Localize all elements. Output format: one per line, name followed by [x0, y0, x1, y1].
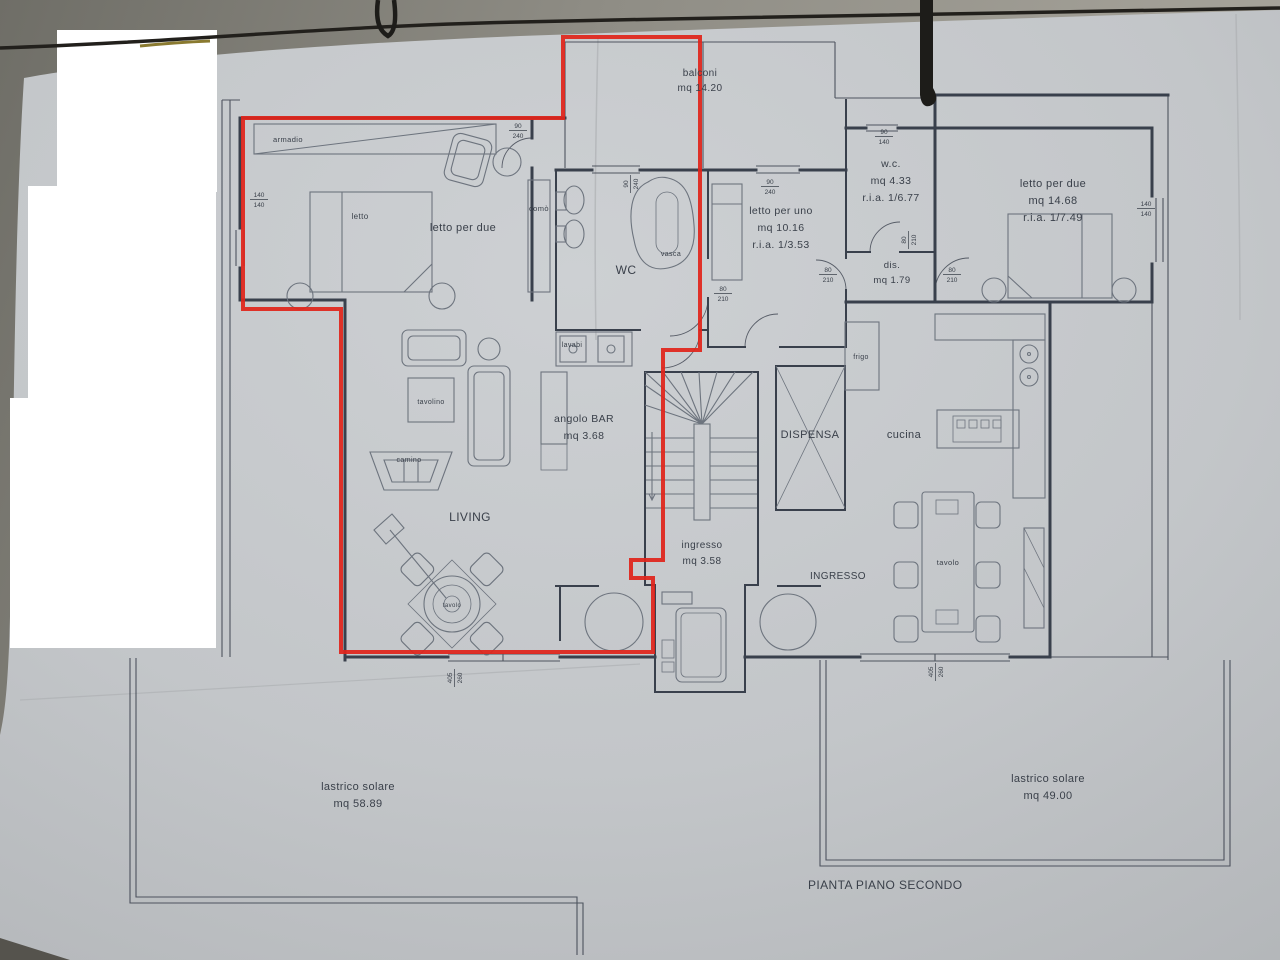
- svg-text:210: 210: [911, 234, 918, 245]
- bed-label: letto: [351, 212, 368, 221]
- svg-text:80: 80: [824, 267, 832, 274]
- wc-small-label: w.c.: [880, 158, 901, 170]
- fridge-label: frigo: [853, 354, 869, 361]
- svg-text:405: 405: [447, 672, 454, 683]
- entry-label: ingresso: [682, 540, 723, 551]
- floor-plan-drawing: balconi mq 14.20 armadio letto letto per…: [0, 0, 1280, 960]
- svg-text:210: 210: [947, 277, 958, 284]
- svg-text:210: 210: [718, 296, 729, 303]
- wc-small-area: mq 4.33: [871, 175, 912, 187]
- bedroom-left-label: letto per due: [430, 222, 496, 234]
- svg-text:240: 240: [765, 189, 776, 196]
- dis-label: dis.: [884, 260, 900, 271]
- svg-text:90: 90: [880, 129, 888, 136]
- terrace-right-area: mq 49.00: [1023, 790, 1072, 802]
- bedroom-single-area: mq 10.16: [758, 222, 805, 234]
- svg-text:140: 140: [879, 139, 890, 146]
- living-label: LIVING: [449, 510, 491, 524]
- svg-text:140: 140: [1141, 201, 1152, 208]
- bar-area: mq 3.68: [564, 430, 605, 442]
- svg-text:80: 80: [719, 286, 727, 293]
- hall-label: INGRESSO: [810, 571, 866, 582]
- svg-text:90: 90: [766, 179, 774, 186]
- bathroom-label: WC: [616, 263, 637, 277]
- pantry-label: DISPENSA: [781, 429, 840, 441]
- floor-plan-photo: balconi mq 14.20 armadio letto letto per…: [0, 0, 1280, 960]
- redaction-block: [57, 30, 217, 192]
- svg-text:90: 90: [623, 180, 630, 188]
- bar-label: angolo BAR: [554, 413, 614, 425]
- svg-text:240: 240: [633, 178, 640, 189]
- dis-area: mq 1.79: [873, 275, 910, 286]
- svg-text:405: 405: [928, 666, 935, 677]
- svg-text:80: 80: [901, 236, 908, 244]
- terrace-left-area: mq 58.89: [333, 798, 382, 810]
- svg-text:210: 210: [823, 277, 834, 284]
- bedroom-single-label: letto per uno: [749, 205, 813, 217]
- redaction-block: [10, 398, 216, 648]
- svg-text:260: 260: [457, 672, 464, 683]
- svg-text:240: 240: [513, 133, 524, 140]
- svg-text:90: 90: [514, 123, 522, 130]
- fireplace-label: camino: [397, 457, 422, 464]
- svg-text:260: 260: [938, 666, 945, 677]
- wc-small-ria: r.i.a. 1/6.77: [862, 192, 919, 204]
- balcony-area: mq 14.20: [678, 83, 723, 94]
- svg-text:140: 140: [1141, 211, 1152, 218]
- bedroom-right-label: letto per due: [1020, 178, 1086, 190]
- bedroom-right-area: mq 14.68: [1028, 195, 1077, 207]
- svg-text:80: 80: [948, 267, 956, 274]
- bedroom-single-ria: r.i.a. 1/3.53: [752, 239, 809, 251]
- terrace-right-label: lastrico solare: [1011, 773, 1085, 785]
- coffee-table-label: tavolino: [417, 399, 444, 406]
- entry-area: mq 3.58: [683, 556, 722, 567]
- svg-text:140: 140: [254, 202, 265, 209]
- bathtub-label: vasca: [661, 251, 681, 258]
- kitchen-label: cucina: [887, 429, 922, 441]
- balcony-label: balconi: [683, 68, 718, 79]
- svg-text:140: 140: [254, 192, 265, 199]
- bedroom-right-ria: r.i.a. 1/7.49: [1023, 212, 1083, 224]
- round-table-label: tavolo: [443, 603, 462, 609]
- terrace-left-label: lastrico solare: [321, 781, 395, 793]
- redaction-block: [28, 186, 216, 402]
- wardrobe-label: armadio: [273, 135, 303, 144]
- sinks-label: lavabi: [562, 342, 583, 349]
- dresser-label: comò: [529, 204, 549, 213]
- dining-table-label: tavolo: [937, 558, 959, 567]
- plan-title: PIANTA PIANO SECONDO: [808, 878, 962, 892]
